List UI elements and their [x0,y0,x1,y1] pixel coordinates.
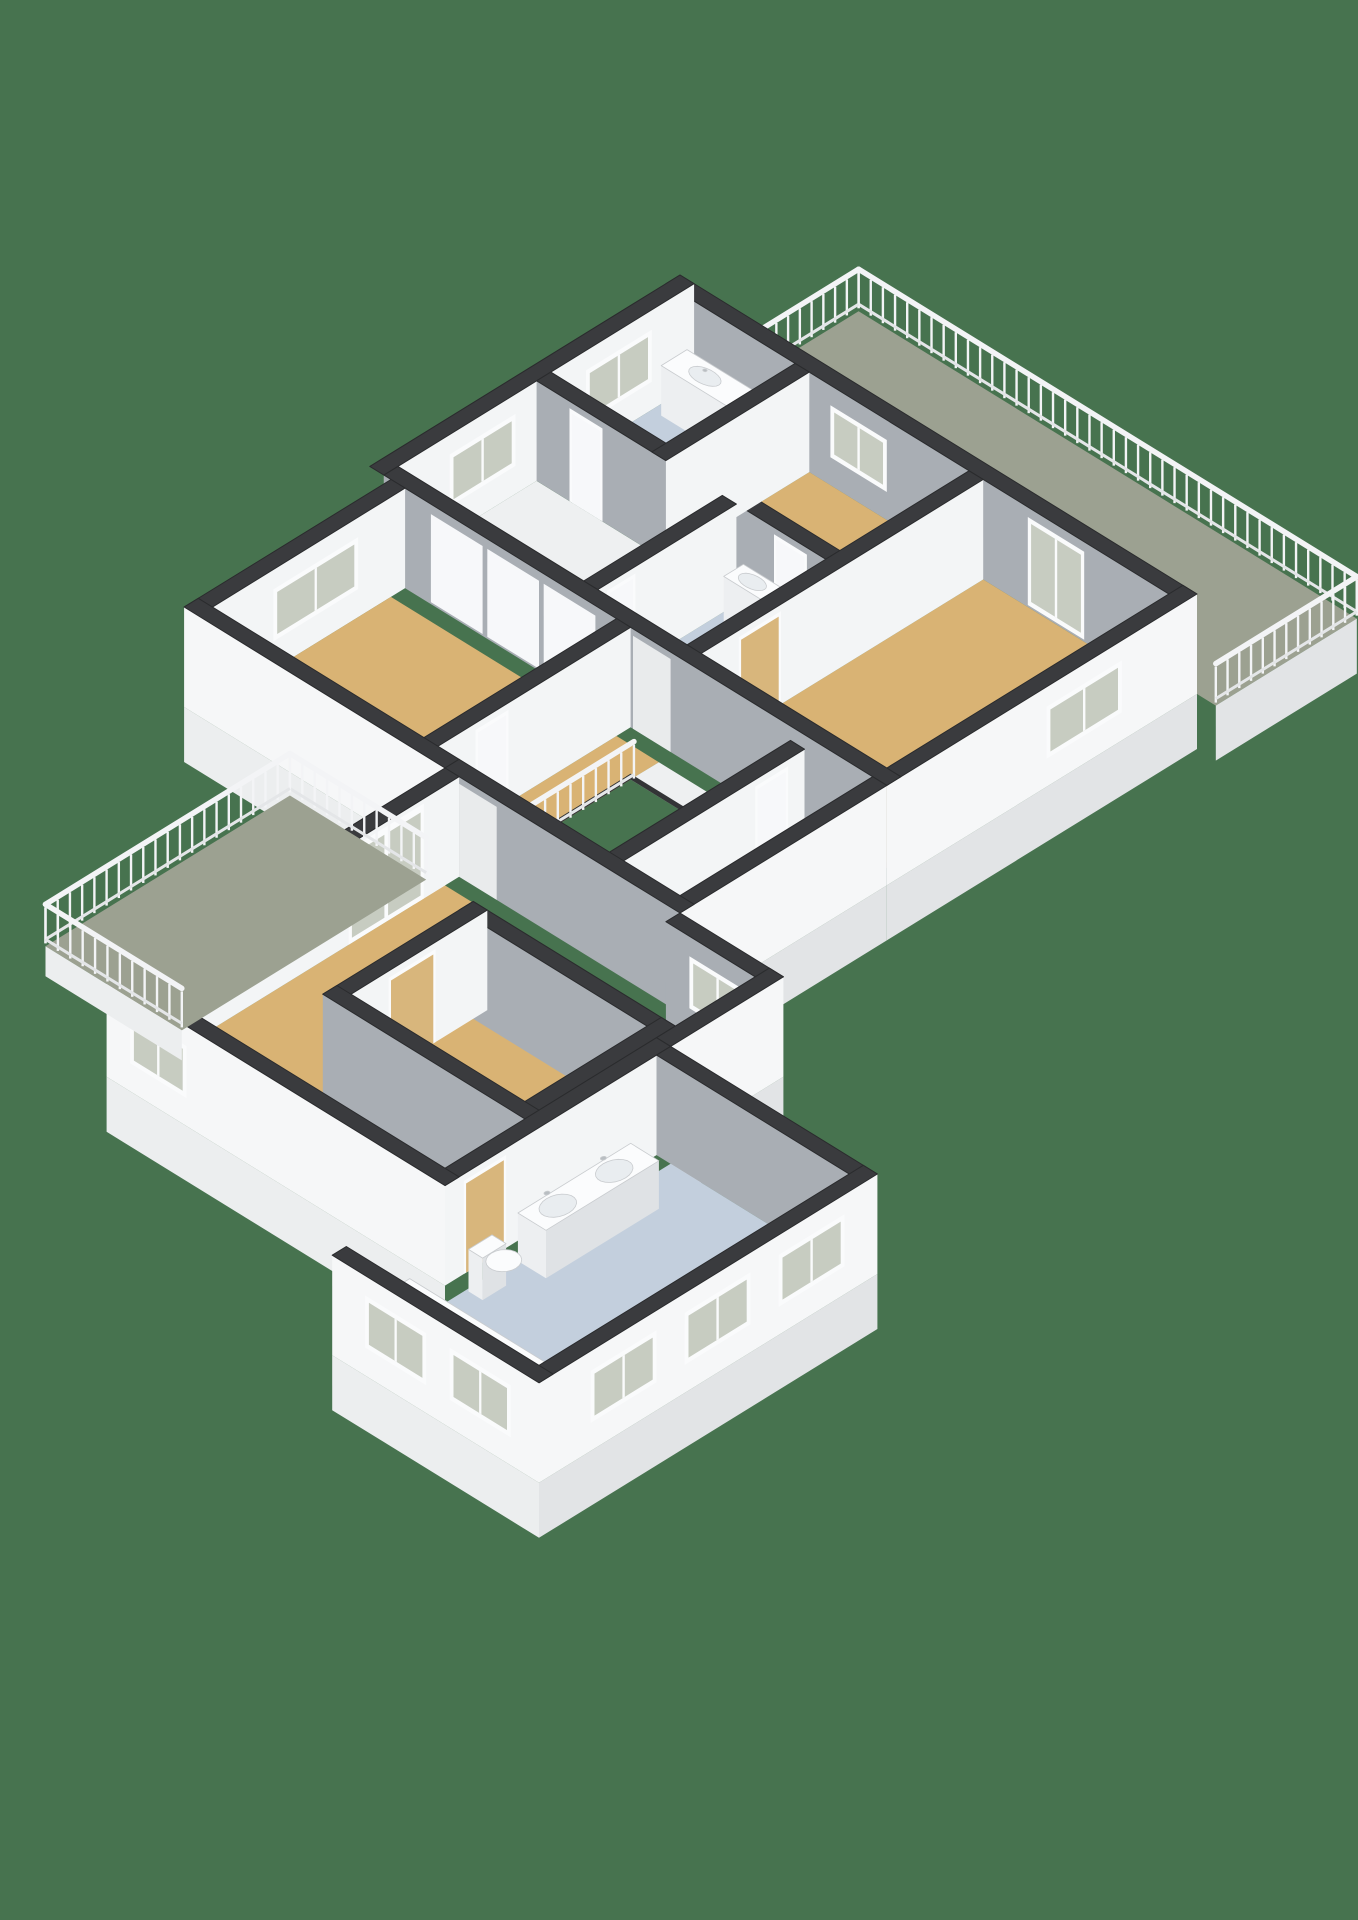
floorplan-canvas [0,0,1358,1920]
window-mullion [810,1239,812,1282]
window-mullion [395,1319,397,1363]
faucet [703,369,707,372]
faucet [544,1191,550,1195]
window-mullion [479,1371,481,1415]
toilet-bowl [486,1250,522,1272]
terrace-door-mullion [1055,539,1057,618]
window-mullion [481,439,483,482]
bathroom-small-door [572,414,600,520]
faucet [600,1156,606,1160]
window-mullion [618,354,620,397]
window-mullion [716,1297,718,1340]
window-mullion [857,427,859,470]
floorplan-3d-render [0,0,1358,1920]
window-mullion [1083,688,1085,731]
window-mullion [622,1355,624,1398]
window-mullion [315,568,317,612]
